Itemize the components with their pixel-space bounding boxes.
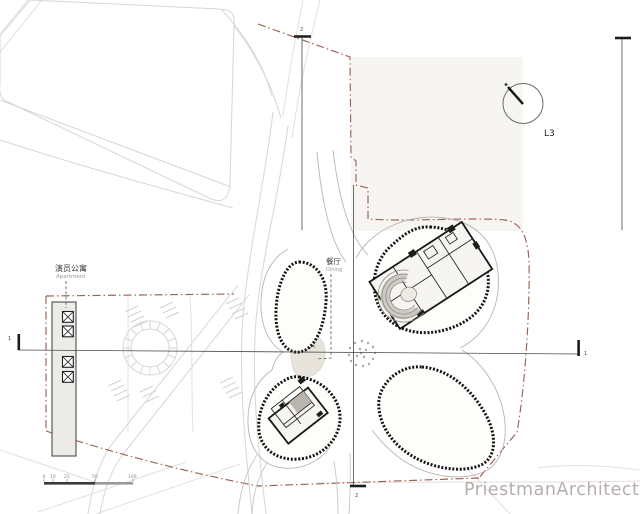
north-arrow-label: L3: [544, 129, 555, 139]
dining-label-zh: 餐厅: [326, 257, 341, 266]
planting-hatches: [108, 298, 248, 402]
scale-bar-dark-segment: [44, 482, 95, 485]
north-arrow-dot: [505, 83, 508, 86]
architect-watermark: PriestmanArchitects: [464, 480, 640, 500]
dining-label-en: Dining: [326, 267, 342, 273]
parcel-road-b: [190, 296, 193, 432]
site-plan-drawing: 演员公寓 Apartment: [0, 0, 640, 514]
site-plan-svg: 演员公寓 Apartment: [0, 0, 640, 514]
road-diagonal-b: [0, 140, 233, 208]
boundary-left-parcel-bottom: [46, 431, 258, 486]
tree-border-lower-right: [379, 367, 494, 469]
city-block-outline: [0, 0, 234, 201]
road-br-a: [538, 465, 640, 470]
path-north-a: [317, 152, 346, 262]
apartment-label-zh: 演员公寓: [55, 263, 87, 273]
section-2-bottom-label: 2: [355, 493, 358, 499]
section-1-left-label: 1: [8, 336, 11, 342]
road-bl-c: [0, 450, 95, 482]
road-top-faint-a: [292, 0, 320, 138]
scale-tick-25: 25: [64, 474, 70, 480]
road-top-faint-b: [283, 0, 303, 116]
apartment-building: [52, 302, 76, 456]
scale-tick-100: 100: [128, 474, 137, 480]
boundary-left-parcel-top: [46, 294, 234, 296]
scale-bar-light-segment: [95, 482, 133, 485]
hatch-cluster: [108, 380, 130, 401]
dotted-paving-circle: [348, 340, 376, 367]
section-2-top-label: 2: [300, 27, 303, 33]
road-corner-curve-a: [234, 26, 281, 118]
road-bl-a: [38, 462, 186, 512]
road-diagonal-a: [0, 100, 231, 187]
road-corner-curve-b: [222, 10, 272, 96]
scale-tick-50: 50: [92, 474, 98, 480]
road-sw-diagonal-a: [88, 285, 238, 514]
path-exit-s-a: [334, 461, 338, 514]
scale-bar: 0 10 25 50 100: [43, 474, 137, 485]
road-sw-diagonal-b: [100, 295, 249, 514]
roundabout: [123, 321, 177, 375]
road-bl-b: [96, 464, 240, 514]
scale-tick-10: 10: [50, 474, 56, 480]
scale-tick-0: 0: [43, 474, 46, 480]
section-1-right-label: 1: [584, 351, 587, 357]
path-exit-s-b: [349, 453, 350, 514]
hatch-cluster: [160, 302, 179, 318]
corner-cut-a: [0, 0, 28, 34]
apartment-label-en: Apartment: [56, 274, 86, 280]
apartment-label: 演员公寓 Apartment: [55, 263, 87, 308]
hatch-cluster: [220, 377, 242, 398]
site-wash: [351, 57, 523, 231]
ground-tone: [351, 57, 523, 231]
